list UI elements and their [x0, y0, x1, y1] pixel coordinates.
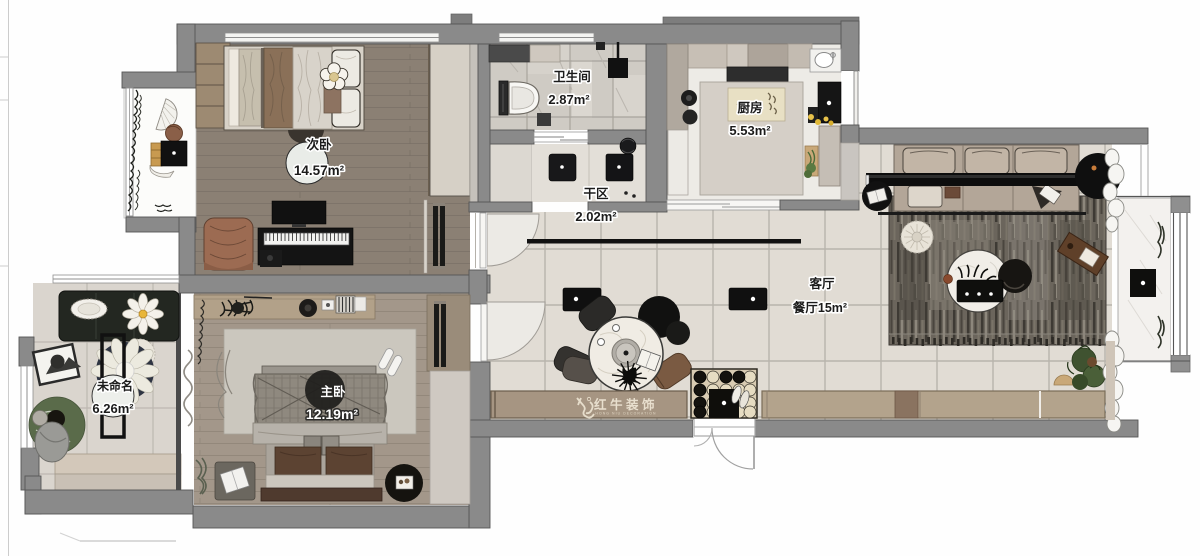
- svg-text:2.87m²: 2.87m²: [548, 92, 590, 107]
- svg-text:卫生间: 卫生间: [553, 69, 591, 84]
- svg-text:2.02m²: 2.02m²: [575, 209, 617, 224]
- svg-text:餐厅15m²: 餐厅15m²: [792, 300, 847, 315]
- svg-text:5.53m²: 5.53m²: [729, 123, 771, 138]
- svg-text:6.26m²: 6.26m²: [92, 401, 134, 416]
- svg-text:12.19m²: 12.19m²: [306, 406, 358, 422]
- svg-text:红牛装饰: 红牛装饰: [594, 397, 658, 412]
- svg-text:HONG NIU DECORATION: HONG NIU DECORATION: [595, 412, 656, 416]
- svg-text:未命名: 未命名: [96, 378, 133, 393]
- svg-text:干区: 干区: [583, 187, 609, 201]
- svg-text:客厅: 客厅: [808, 276, 835, 291]
- svg-text:厨房: 厨房: [737, 100, 762, 115]
- svg-text:14.57m²: 14.57m²: [294, 163, 345, 178]
- svg-text:主卧: 主卧: [320, 384, 346, 399]
- svg-text:次卧: 次卧: [306, 137, 332, 152]
